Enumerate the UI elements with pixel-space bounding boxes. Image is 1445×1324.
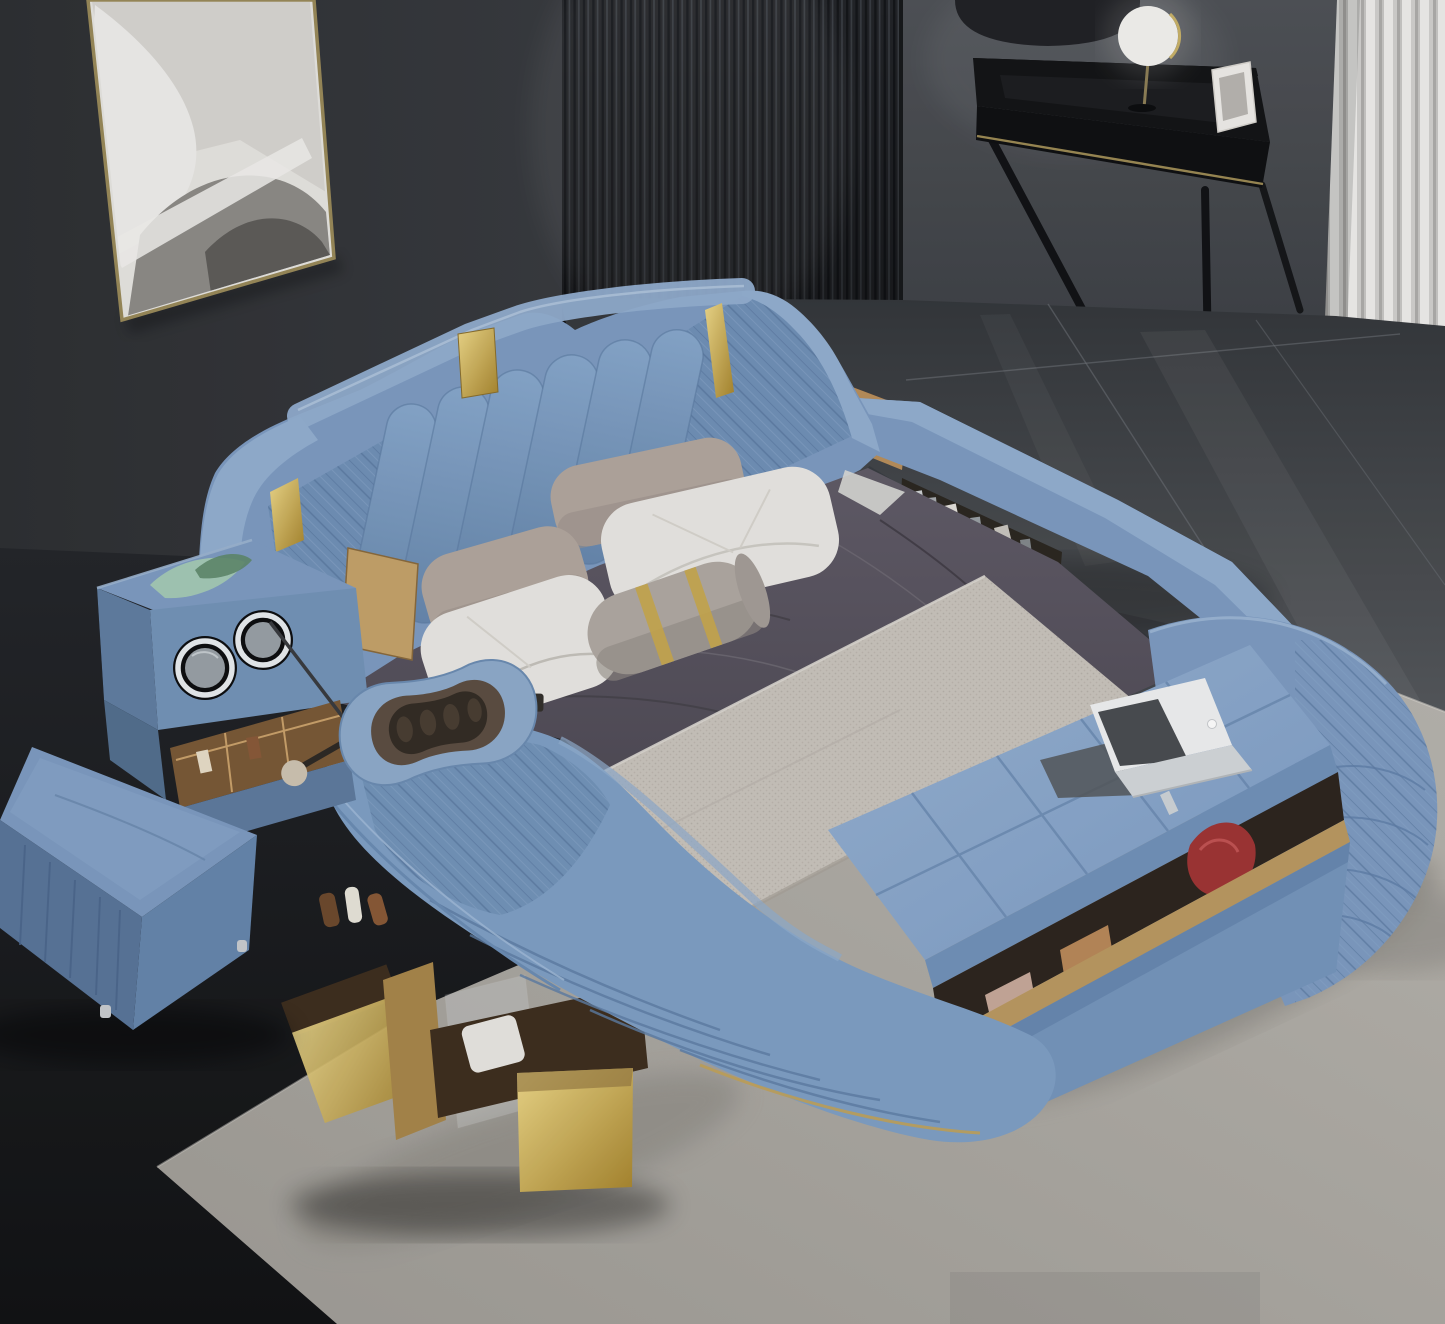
bedroom-photo	[0, 0, 1445, 1324]
scene-canvas	[0, 0, 1445, 1324]
vignette	[0, 0, 1445, 1324]
